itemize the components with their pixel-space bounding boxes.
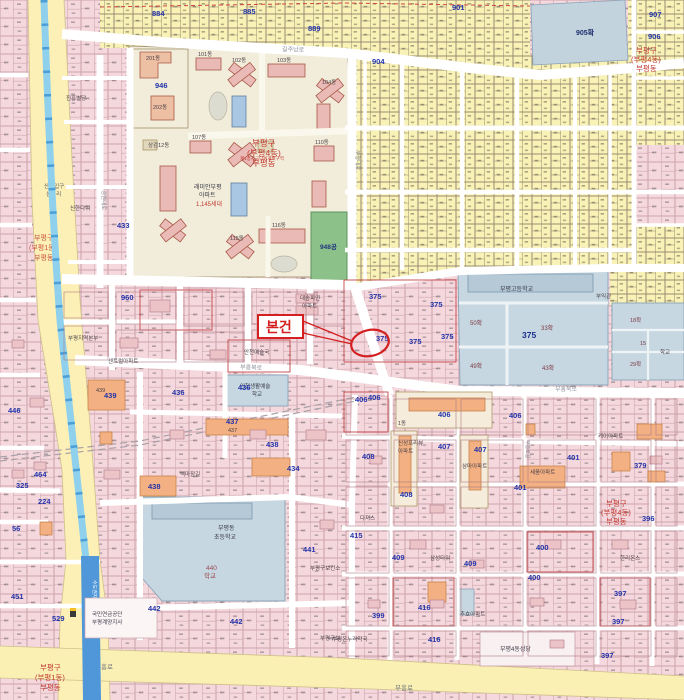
svg-text:학교: 학교 <box>252 390 262 398</box>
svg-text:래미안부평: 래미안부평 <box>194 183 222 191</box>
svg-text:438: 438 <box>266 440 279 449</box>
svg-text:400: 400 <box>536 543 549 552</box>
svg-text:375: 375 <box>409 337 422 346</box>
svg-text:세움아파트: 세움아파트 <box>530 468 555 476</box>
svg-text:415: 415 <box>350 531 363 540</box>
svg-text:1,145세대: 1,145세대 <box>196 200 222 208</box>
svg-text:부평구: 부평구 <box>252 138 276 148</box>
svg-text:397: 397 <box>601 651 614 660</box>
svg-text:33확: 33확 <box>541 324 554 332</box>
svg-text:116동: 116동 <box>272 222 286 229</box>
svg-text:397: 397 <box>614 589 627 598</box>
svg-text:아파트: 아파트 <box>199 191 216 199</box>
svg-text:학교: 학교 <box>204 571 216 580</box>
svg-text:407: 407 <box>438 442 451 451</box>
svg-text:433: 433 <box>117 221 130 230</box>
svg-text:상검12동: 상검12동 <box>148 141 169 149</box>
svg-text:부흥북로: 부흥북로 <box>555 385 578 393</box>
svg-text:406: 406 <box>509 411 522 420</box>
svg-text:408: 408 <box>362 452 375 461</box>
svg-text:399: 399 <box>372 611 385 620</box>
svg-text:375: 375 <box>369 292 382 301</box>
svg-text:다져스: 다져스 <box>360 514 375 522</box>
svg-text:396: 396 <box>642 514 655 523</box>
svg-text:407: 407 <box>474 445 487 454</box>
svg-text:906: 906 <box>648 32 661 41</box>
svg-text:부평지역본부: 부평지역본부 <box>68 334 98 342</box>
svg-text:437: 437 <box>228 428 237 434</box>
svg-text:442: 442 <box>230 617 243 626</box>
svg-text:29확: 29확 <box>630 360 641 368</box>
svg-text:441: 441 <box>303 545 316 554</box>
svg-text:401: 401 <box>567 453 580 462</box>
svg-text:초등학교: 초등학교 <box>214 533 237 541</box>
svg-text:905확: 905확 <box>576 28 595 37</box>
svg-text:대송파인: 대송파인 <box>300 294 320 302</box>
svg-text:115동: 115동 <box>230 235 244 242</box>
svg-text:406: 406 <box>368 393 381 402</box>
svg-text:406: 406 <box>438 410 451 419</box>
svg-text:부흥로: 부흥로 <box>395 683 413 692</box>
svg-text:부평구보: 부평구보 <box>320 635 340 642</box>
svg-text:국민연금공단: 국민연금공단 <box>92 610 122 618</box>
svg-text:325: 325 <box>16 481 29 490</box>
svg-text:224: 224 <box>38 497 51 506</box>
svg-text:201동: 201동 <box>146 55 160 62</box>
svg-text:409: 409 <box>464 559 477 568</box>
svg-text:103동: 103동 <box>277 57 291 64</box>
svg-text:948공: 948공 <box>320 243 337 251</box>
svg-text:추호아파트: 추호아파트 <box>460 610 485 618</box>
svg-text:904: 904 <box>372 57 385 66</box>
svg-text:부평동: 부평동 <box>218 524 235 532</box>
svg-text:신성프리뷰: 신성프리뷰 <box>398 439 423 447</box>
svg-text:901: 901 <box>452 3 465 12</box>
svg-text:안천예술국: 안천예술국 <box>244 348 269 356</box>
svg-text:946: 946 <box>155 81 168 90</box>
svg-text:889: 889 <box>308 24 321 33</box>
svg-text:436: 436 <box>172 388 185 397</box>
svg-text:부평동: 부평동 <box>606 516 627 526</box>
svg-text:408: 408 <box>400 490 413 499</box>
svg-text:437: 437 <box>226 417 239 426</box>
svg-text:451: 451 <box>11 592 24 601</box>
svg-text:부평대로: 부평대로 <box>354 150 362 170</box>
svg-text:110동: 110동 <box>315 139 329 146</box>
svg-text:케이아파트: 케이아파트 <box>598 432 623 440</box>
svg-text:464: 464 <box>34 470 47 479</box>
svg-text:436: 436 <box>238 383 251 392</box>
svg-text:960: 960 <box>121 293 134 302</box>
svg-text:439: 439 <box>96 388 105 394</box>
svg-text:50확: 50확 <box>470 319 483 327</box>
svg-text:(부평1동): (부평1동) <box>35 672 65 682</box>
svg-text:경원대로: 경원대로 <box>100 190 108 210</box>
svg-text:아파트: 아파트 <box>302 302 317 310</box>
svg-text:375: 375 <box>430 300 443 309</box>
svg-text:1동: 1동 <box>398 420 406 427</box>
svg-text:부평구: 부평구 <box>636 45 657 55</box>
svg-text:884: 884 <box>152 9 165 18</box>
svg-text:397: 397 <box>612 617 625 626</box>
svg-text:375: 375 <box>441 332 454 341</box>
svg-text:부평동: 부평동 <box>636 63 657 73</box>
svg-text:107동: 107동 <box>192 134 206 141</box>
svg-text:본건: 본건 <box>266 319 292 335</box>
svg-text:부평계양지사: 부평계양지사 <box>92 618 122 626</box>
svg-text:(부평4동): (부평4동) <box>601 507 631 517</box>
svg-text:101동: 101동 <box>198 51 212 58</box>
svg-text:신한다워: 신한다워 <box>70 204 90 212</box>
svg-text:삼성타워: 삼성타워 <box>430 554 450 562</box>
svg-text:삼마아파트: 삼마아파트 <box>462 462 487 470</box>
svg-text:440: 440 <box>206 565 217 572</box>
svg-text:센트럴아파트: 센트럴아파트 <box>108 357 138 365</box>
svg-text:406: 406 <box>355 395 368 404</box>
svg-text:백마장길: 백마장길 <box>180 470 200 478</box>
svg-text:446: 446 <box>8 406 21 415</box>
svg-text:제1종지구단위계획구역: 제1종지구단위계획구역 <box>240 155 284 162</box>
svg-text:진흥별당: 진흥별당 <box>66 94 86 102</box>
svg-text:43확: 43확 <box>542 364 555 372</box>
svg-text:401: 401 <box>514 483 527 492</box>
svg-text:부평동: 부평동 <box>34 253 54 262</box>
svg-text:아파트: 아파트 <box>398 447 413 455</box>
svg-text:56: 56 <box>12 524 20 533</box>
svg-text:400: 400 <box>528 573 541 582</box>
svg-text:49확: 49확 <box>470 362 483 370</box>
svg-text:학교: 학교 <box>660 348 670 356</box>
svg-text:416: 416 <box>418 603 431 612</box>
svg-text:438: 438 <box>148 482 161 491</box>
svg-text:409: 409 <box>392 553 405 562</box>
svg-text:379: 379 <box>634 461 647 470</box>
svg-text:한리온스: 한리온스 <box>620 554 640 562</box>
svg-text:529: 529 <box>52 614 65 623</box>
svg-text:부평구보건소: 부평구보건소 <box>310 565 340 572</box>
svg-text:(부평4동): (부평4동) <box>631 54 661 64</box>
svg-text:부평구: 부평구 <box>606 498 627 508</box>
svg-text:부평구: 부평구 <box>40 662 61 672</box>
svg-text:885: 885 <box>243 7 256 16</box>
svg-text:부익관: 부익관 <box>596 292 611 300</box>
svg-text:434: 434 <box>287 464 300 473</box>
svg-text:375: 375 <box>522 330 536 340</box>
svg-text:15: 15 <box>640 341 646 347</box>
svg-text:439: 439 <box>104 391 117 400</box>
svg-text:부흥로길: 부흥로길 <box>524 440 531 459</box>
svg-text:부평4동성당: 부평4동성당 <box>500 645 531 653</box>
svg-text:18확: 18확 <box>630 316 641 324</box>
svg-text:907: 907 <box>649 10 662 19</box>
svg-text:202동: 202동 <box>153 104 167 111</box>
svg-text:104동: 104동 <box>322 79 336 86</box>
svg-text:416: 416 <box>428 635 441 644</box>
svg-text:102동: 102동 <box>232 57 246 64</box>
svg-text:부평고등학교: 부평고등학교 <box>500 285 534 293</box>
svg-text:442: 442 <box>148 604 161 613</box>
svg-text:부평동: 부평동 <box>40 682 61 692</box>
